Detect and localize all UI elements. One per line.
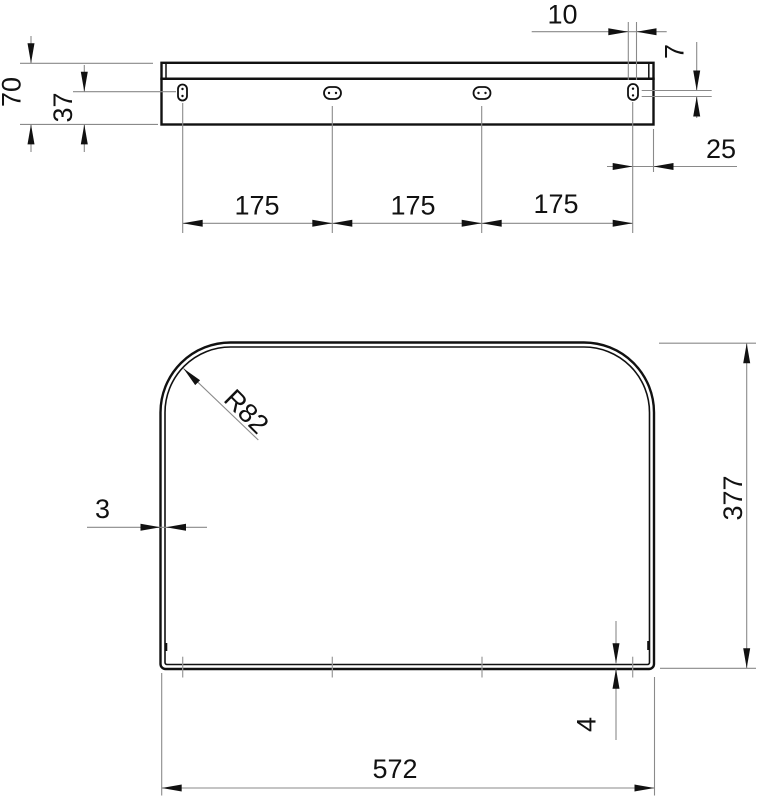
arrowhead-left <box>183 220 203 227</box>
dim-572-label: 572 <box>372 754 417 784</box>
slot-1 <box>178 85 187 101</box>
dimension-37: 37 <box>48 65 176 152</box>
technical-drawing: 70 37 10 7 <box>0 0 758 800</box>
arrowhead-up <box>743 343 750 363</box>
dim-175-label-3: 175 <box>533 189 578 219</box>
dim-r82-label: R82 <box>218 384 274 440</box>
slot-hole <box>328 92 330 94</box>
dimension-572: 572 <box>162 673 655 796</box>
arrowhead-down <box>693 71 700 91</box>
arrowhead-down <box>743 648 750 668</box>
slot-4 <box>628 84 638 100</box>
arrowhead-left <box>162 785 182 792</box>
slot-outline <box>628 84 638 100</box>
arrowhead-right <box>608 28 628 35</box>
arrowhead-left <box>332 220 352 227</box>
dimension-377: 377 <box>659 343 756 668</box>
arrowhead-right <box>462 220 482 227</box>
arrowhead-right <box>613 220 633 227</box>
drawing-canvas: 70 37 10 7 <box>0 0 758 800</box>
arrowhead-right <box>312 220 332 227</box>
arrowhead-up <box>693 97 700 117</box>
dim-3-label: 3 <box>95 494 110 524</box>
arrowhead-left <box>482 220 502 227</box>
slot-outline <box>324 87 341 99</box>
arrowhead-down <box>613 643 620 663</box>
arrowhead-right <box>635 785 655 792</box>
dim-175-label-1: 175 <box>234 191 279 221</box>
dim-25-label: 25 <box>706 134 736 164</box>
dim-4-label: 4 <box>572 717 602 732</box>
slot-hole <box>477 92 479 94</box>
slot-3 <box>474 87 491 99</box>
arrowhead-right <box>141 524 161 531</box>
dimension-25: 25 <box>607 129 737 172</box>
dimension-4: 4 <box>572 621 620 740</box>
dim-7-label: 7 <box>660 44 690 59</box>
arrowhead-right <box>613 163 633 170</box>
arrowhead-left <box>637 28 657 35</box>
slot-hole <box>181 95 183 97</box>
dimension-3: 3 <box>87 494 207 531</box>
slot-hole <box>632 88 634 90</box>
slot-outline <box>178 85 187 101</box>
arrowhead-left <box>654 163 674 170</box>
dimension-70: 70 <box>0 36 158 152</box>
dim-377-label: 377 <box>718 475 748 520</box>
arrowhead-down <box>81 72 88 92</box>
slot-2 <box>324 87 341 99</box>
arrowhead-left <box>166 524 186 531</box>
dim-37-label: 37 <box>48 92 78 122</box>
dim-10-label: 10 <box>547 0 577 30</box>
slot-outline <box>474 87 491 99</box>
arrowhead-up <box>28 124 35 144</box>
slot-hole <box>181 88 183 90</box>
slot-hole <box>484 92 486 94</box>
arrowhead-radius <box>184 369 201 386</box>
dimension-r82: R82 <box>184 369 275 441</box>
arrowhead-down <box>28 43 35 63</box>
arrowhead-up <box>81 124 88 144</box>
side-profile-view: 70 37 10 7 <box>0 0 737 233</box>
side-view-body <box>162 79 654 125</box>
side-view-lip <box>162 63 654 79</box>
dim-175-label-2: 175 <box>390 191 435 221</box>
slot-hole <box>632 94 634 96</box>
plan-view: R82 3 377 4 <box>87 343 756 796</box>
arrowhead-up <box>613 669 620 689</box>
slot-hole <box>335 92 337 94</box>
dim-70-label: 70 <box>0 77 27 107</box>
